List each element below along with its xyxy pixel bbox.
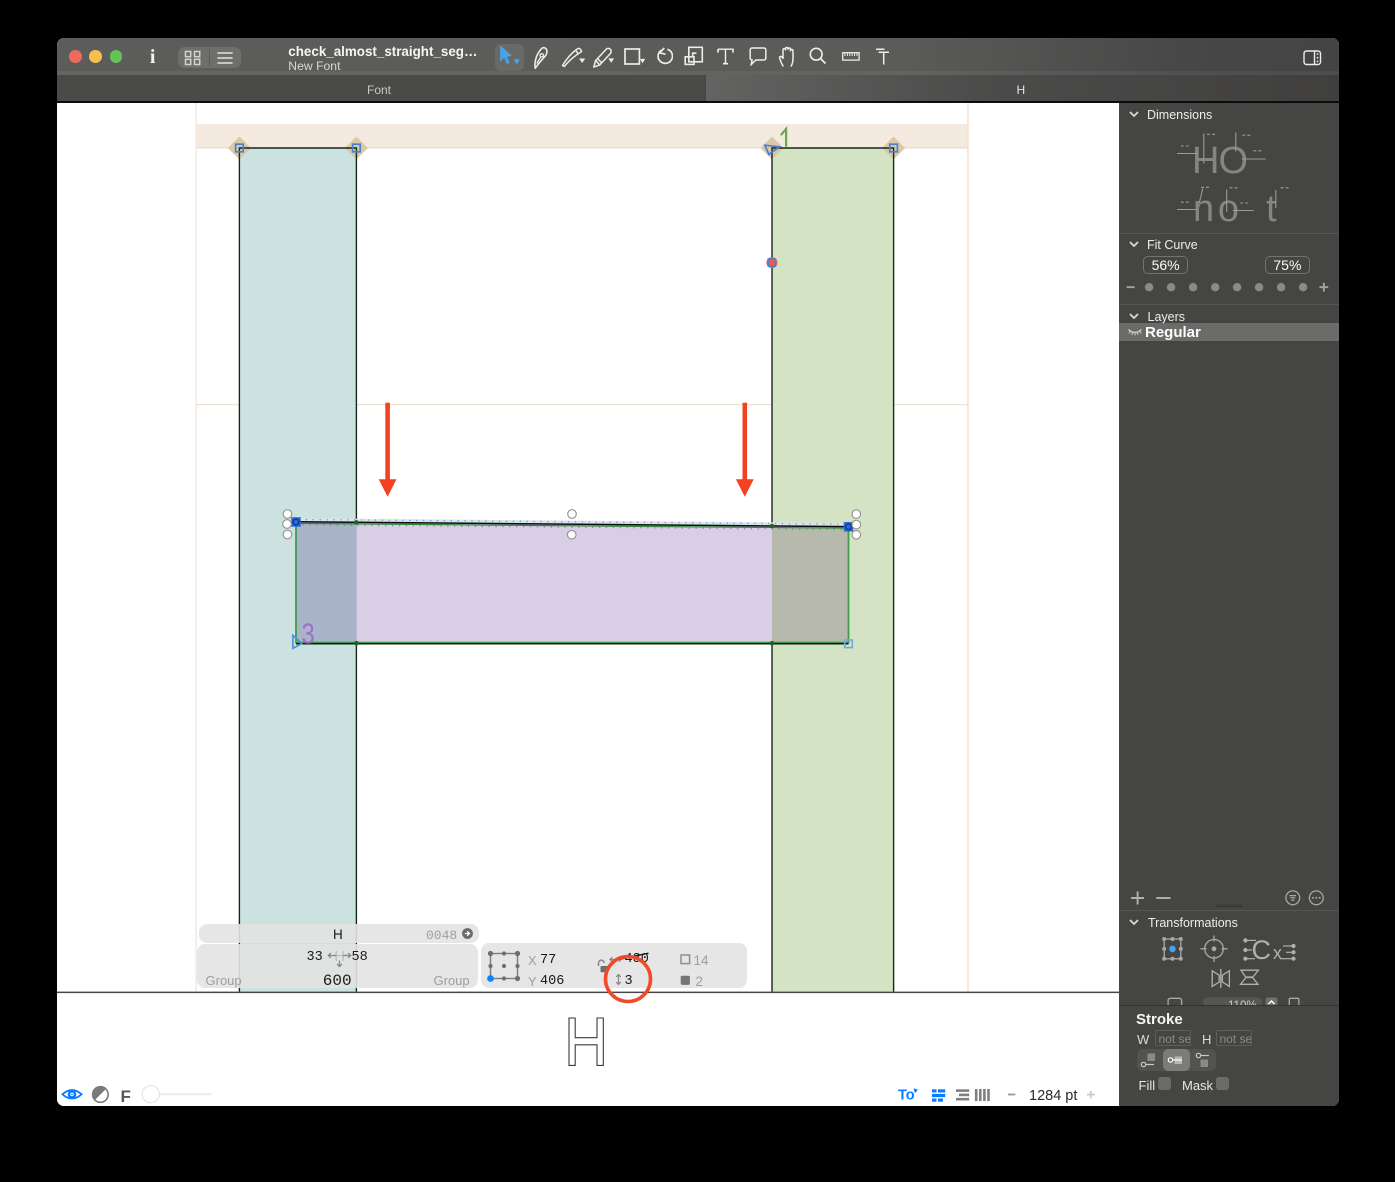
svg-text:1284 pt: 1284 pt [1029, 1088, 1077, 1104]
svg-text:F: F [121, 1087, 131, 1106]
svg-text:no: no [1193, 188, 1239, 230]
svg-text:x: x [1273, 943, 1282, 963]
svg-text:C: C [1252, 935, 1272, 965]
svg-text:HO: HO [1192, 140, 1248, 182]
svg-text:3: 3 [302, 617, 315, 650]
svg-text:To: To [898, 1088, 915, 1104]
